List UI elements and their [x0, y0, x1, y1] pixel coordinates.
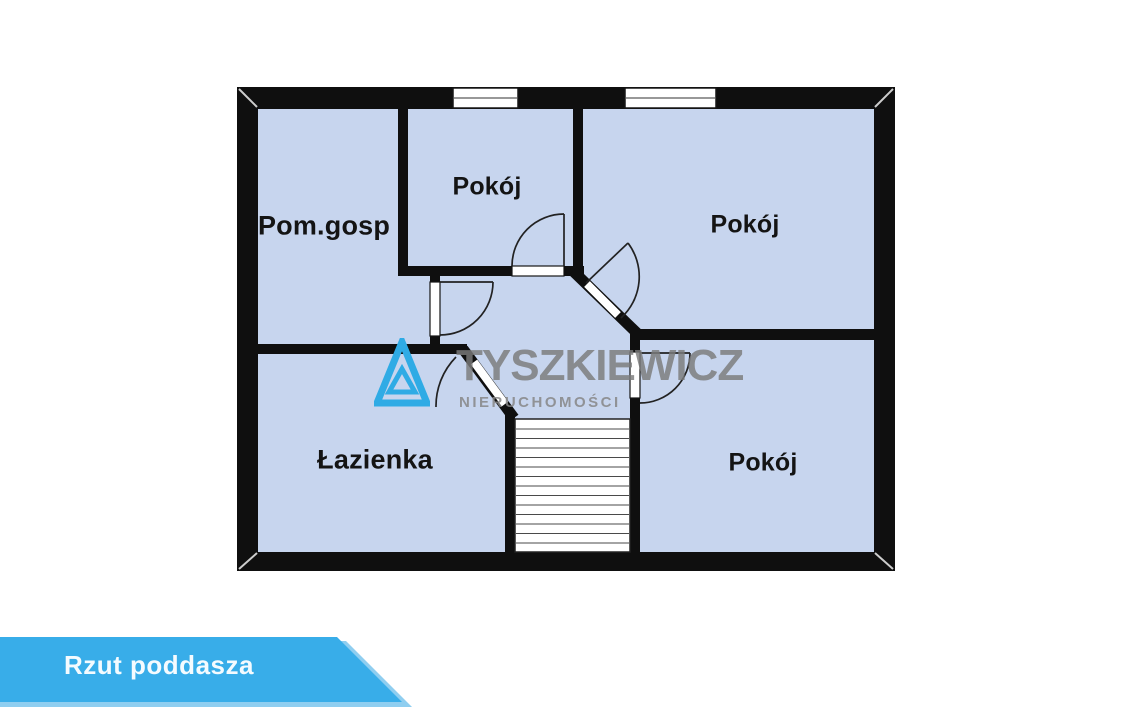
staircase: [515, 419, 630, 552]
door-gap-pomgosp: [430, 282, 440, 336]
room-label-pokoj-bottom-right: Pokój: [728, 449, 797, 478]
wall-pokoj-pokoj: [573, 109, 583, 270]
outer-wall-left: [237, 87, 258, 571]
outer-wall-top: [237, 87, 895, 109]
floorplan-drawing: [0, 0, 1133, 708]
plan-title: Rzut poddasza: [64, 650, 254, 681]
floorplan-page: Pom.gosp Pokój Pokój Łazienka Pokój TYSZ…: [0, 0, 1133, 708]
outer-wall-right: [874, 87, 895, 571]
room-label-pom-gosp: Pom.gosp: [258, 211, 390, 242]
door-gap-pokoj-bottom: [630, 352, 640, 398]
wall-lazienka-top: [237, 344, 467, 354]
room-label-pokoj-top-right: Pokój: [710, 211, 779, 240]
wall-stairwell-left: [505, 412, 515, 552]
door-gap-pokoj-small: [512, 266, 564, 276]
wall-right-rooms-divider: [630, 329, 874, 340]
room-label-pokoj-top-middle: Pokój: [452, 173, 521, 202]
room-label-lazienka: Łazienka: [317, 445, 433, 476]
outer-wall-bottom: [237, 552, 895, 571]
wall-pokoj-bottom: [398, 266, 512, 276]
wall-pomgosp-pokoj: [398, 109, 408, 276]
